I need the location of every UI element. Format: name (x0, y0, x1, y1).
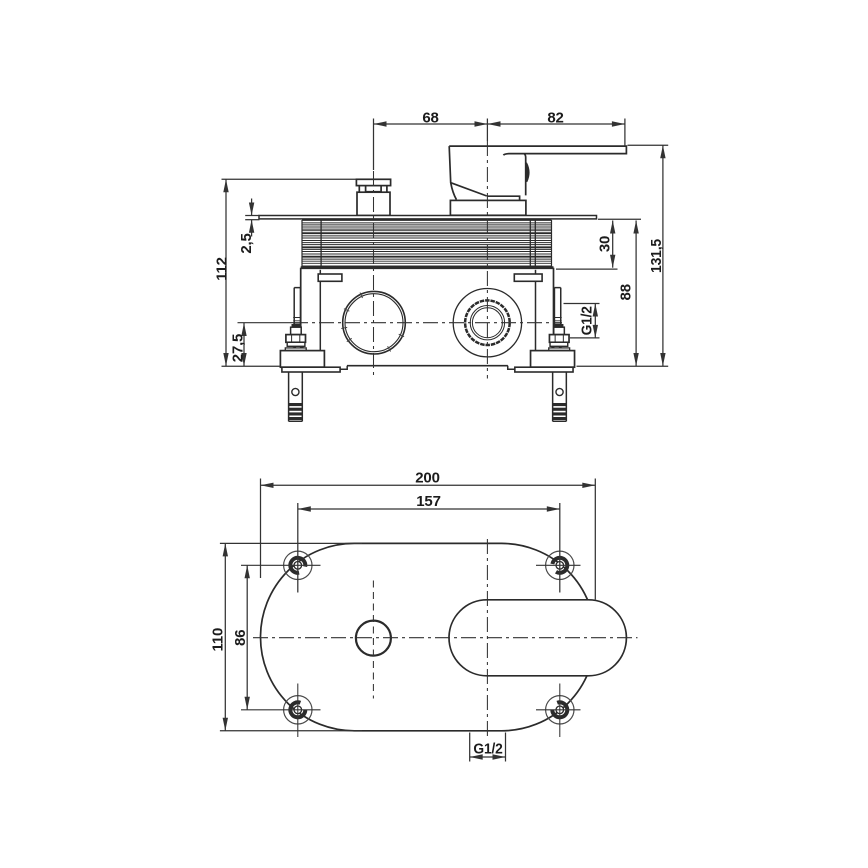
svg-text:27,5: 27,5 (229, 334, 246, 362)
svg-text:30: 30 (596, 236, 613, 252)
svg-text:157: 157 (416, 493, 440, 510)
svg-text:82: 82 (547, 110, 563, 127)
svg-text:G1/2: G1/2 (473, 741, 502, 758)
svg-text:131,5: 131,5 (649, 239, 666, 273)
svg-text:88: 88 (617, 284, 634, 300)
svg-text:G1/2: G1/2 (579, 306, 596, 335)
svg-text:2,5: 2,5 (238, 233, 255, 253)
svg-text:110: 110 (209, 628, 226, 652)
svg-text:112: 112 (214, 257, 231, 281)
svg-text:68: 68 (422, 110, 438, 127)
svg-text:86: 86 (232, 630, 249, 646)
svg-text:200: 200 (415, 470, 439, 487)
